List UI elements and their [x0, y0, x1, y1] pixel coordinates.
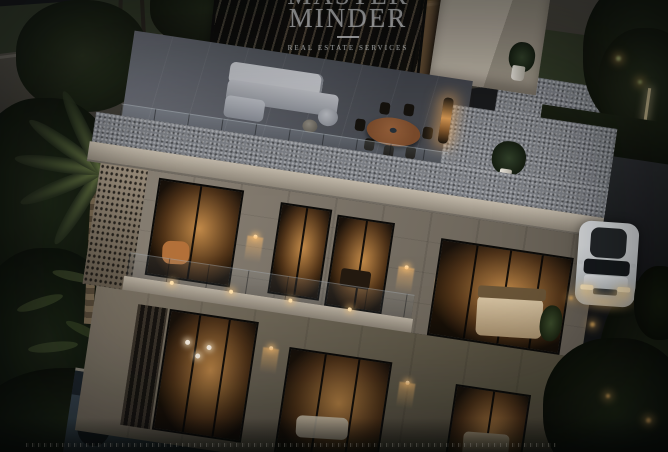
garden-light [590, 322, 595, 327]
terrace-planter-pot [510, 65, 525, 82]
bed [475, 295, 543, 339]
suv-car [574, 220, 640, 308]
car-mirror [631, 264, 636, 268]
pendant-globe-light [195, 353, 201, 359]
watermark: MASTER MINDER REAL ESTATE SERVICES [278, 0, 418, 52]
watermark-brand-bottom: MINDER [278, 6, 418, 31]
pendant-globe-light [206, 345, 212, 351]
car-sunroof [589, 227, 627, 259]
car-mirror [578, 260, 583, 264]
window-mullion [182, 315, 201, 432]
dining-chair [403, 103, 415, 116]
watermark-tagline: REAL ESTATE SERVICES [278, 44, 418, 52]
fineprint-strip [26, 443, 556, 447]
car-windshield [583, 258, 630, 276]
dining-chair [379, 102, 391, 115]
watermark-divider [337, 36, 359, 38]
window-bedroom-upper [427, 238, 574, 355]
villa-building [57, 20, 612, 452]
dining-chair [422, 126, 434, 139]
garden-light [569, 296, 573, 300]
garden-light [638, 80, 642, 84]
garden-light [616, 56, 621, 61]
garden-light [606, 394, 610, 398]
pendant-globe-light [185, 339, 191, 345]
villa-night-render: MASTER MINDER REAL ESTATE SERVICES [0, 0, 668, 452]
dining-chair [354, 118, 366, 131]
